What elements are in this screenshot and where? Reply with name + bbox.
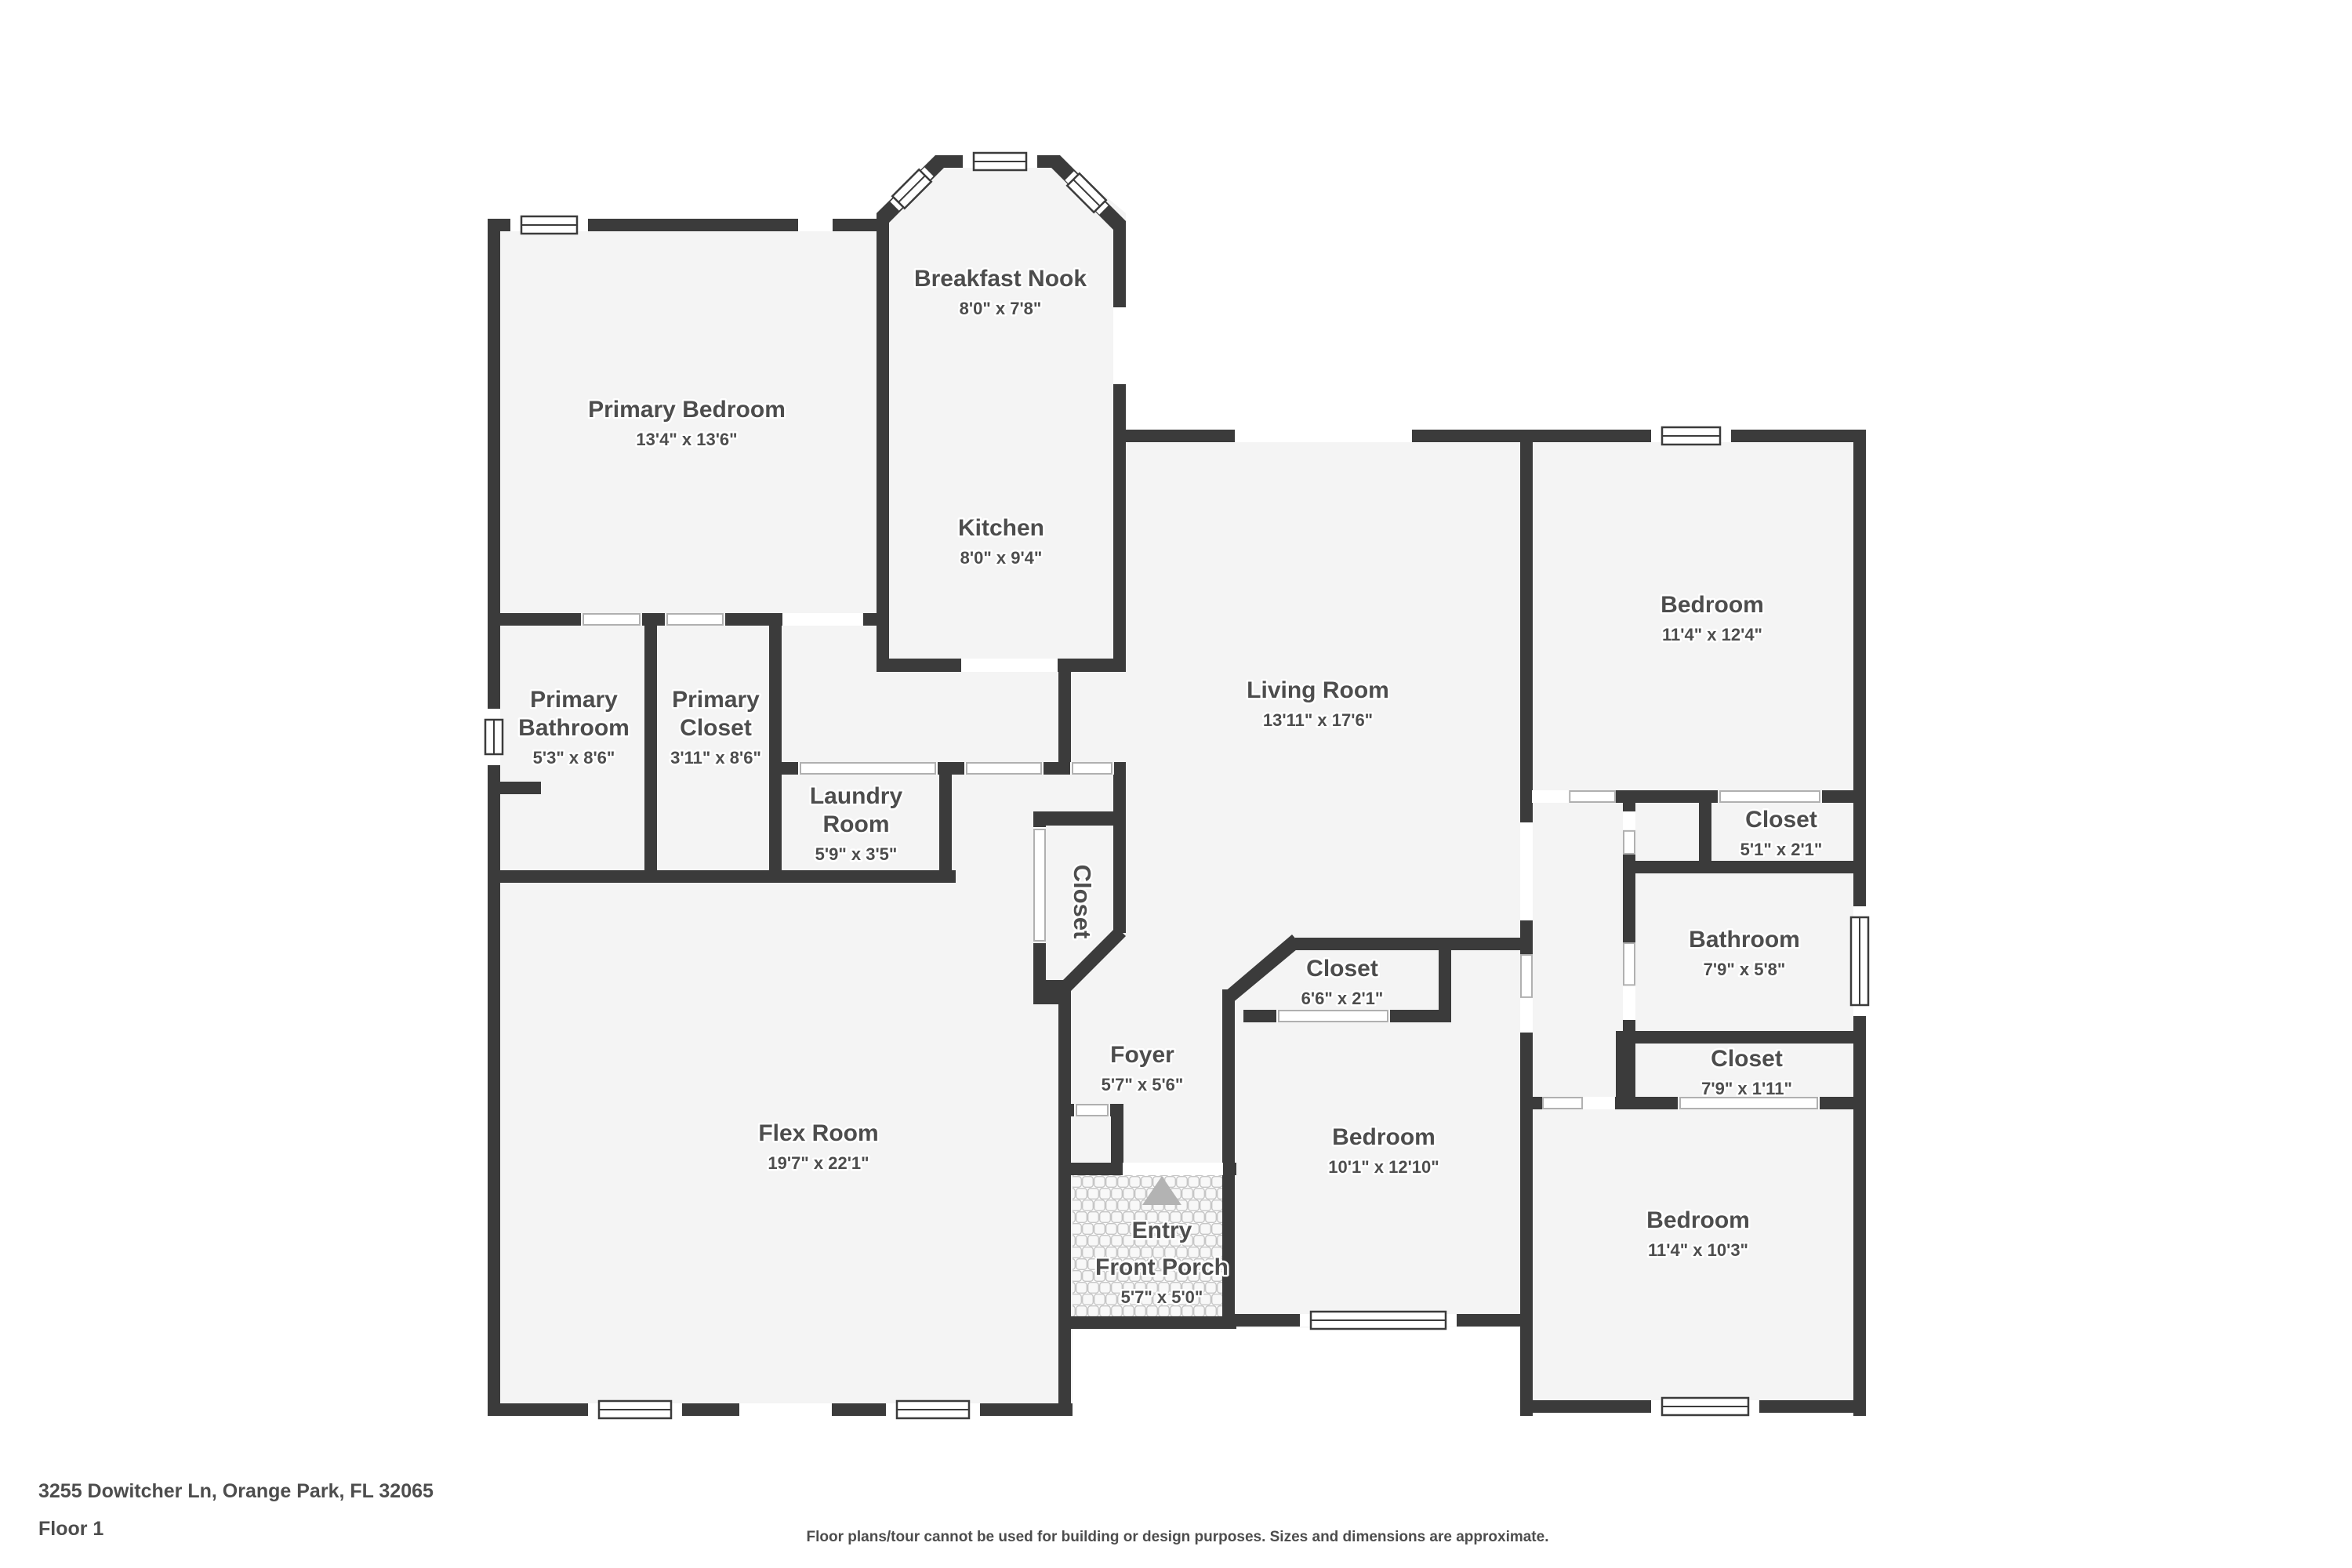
svg-text:Entry: Entry [1132,1218,1192,1243]
svg-text:5'1" x 2'1": 5'1" x 2'1" [1740,840,1823,859]
svg-text:11'4" x 10'3": 11'4" x 10'3" [1648,1240,1748,1260]
svg-text:3255 Dowitcher Ln, Orange Park: 3255 Dowitcher Ln, Orange Park, FL 32065 [38,1480,434,1502]
svg-text:Primary Bedroom: Primary Bedroom [588,397,786,423]
svg-text:Closet: Closet [1306,956,1378,982]
svg-text:Bedroom: Bedroom [1661,592,1764,618]
svg-text:Primary: Primary [672,687,760,713]
svg-text:Bedroom: Bedroom [1646,1207,1750,1233]
svg-text:Closet: Closet [1745,807,1817,833]
svg-text:Closet: Closet [1069,865,1096,939]
svg-text:Floor 1: Floor 1 [38,1518,103,1540]
svg-text:3'11" x 8'6": 3'11" x 8'6" [670,748,761,768]
svg-text:Primary: Primary [530,687,618,713]
svg-text:5'3" x 8'6": 5'3" x 8'6" [533,748,615,768]
svg-text:5'7" x 5'6": 5'7" x 5'6" [1102,1075,1184,1094]
svg-text:5'9" x 3'5": 5'9" x 3'5" [815,844,898,864]
svg-text:Front Porch: Front Porch [1095,1254,1229,1280]
svg-text:Foyer: Foyer [1110,1042,1174,1068]
svg-text:13'11" x 17'6": 13'11" x 17'6" [1263,710,1373,730]
svg-text:10'1" x 12'10": 10'1" x 12'10" [1328,1157,1439,1177]
svg-text:Room: Room [823,811,890,837]
svg-text:6'6" x 2'1": 6'6" x 2'1" [1301,989,1384,1008]
svg-text:Bathroom: Bathroom [1689,927,1800,953]
svg-text:Laundry: Laundry [810,783,903,809]
svg-text:Closet: Closet [1711,1046,1783,1072]
svg-text:Floor plans/tour cannot be use: Floor plans/tour cannot be used for buil… [807,1529,1549,1545]
svg-text:Closet: Closet [680,715,752,741]
svg-text:7'9" x 1'11": 7'9" x 1'11" [1701,1079,1792,1098]
svg-text:Bedroom: Bedroom [1332,1124,1436,1150]
svg-text:7'9" x 5'8": 7'9" x 5'8" [1704,960,1786,979]
svg-text:5'7" x 5'0": 5'7" x 5'0" [1121,1287,1203,1307]
svg-text:11'4" x 12'4": 11'4" x 12'4" [1662,625,1762,644]
svg-text:Breakfast Nook: Breakfast Nook [914,266,1087,292]
svg-text:Bathroom: Bathroom [518,715,630,741]
svg-text:19'7" x 22'1": 19'7" x 22'1" [768,1153,869,1173]
svg-text:Flex Room: Flex Room [758,1120,878,1146]
svg-text:8'0" x 9'4": 8'0" x 9'4" [960,548,1043,568]
svg-text:Living Room: Living Room [1247,677,1389,703]
svg-text:8'0" x 7'8": 8'0" x 7'8" [960,299,1042,318]
svg-text:Kitchen: Kitchen [958,515,1044,541]
svg-text:13'4" x 13'6": 13'4" x 13'6" [636,430,737,449]
